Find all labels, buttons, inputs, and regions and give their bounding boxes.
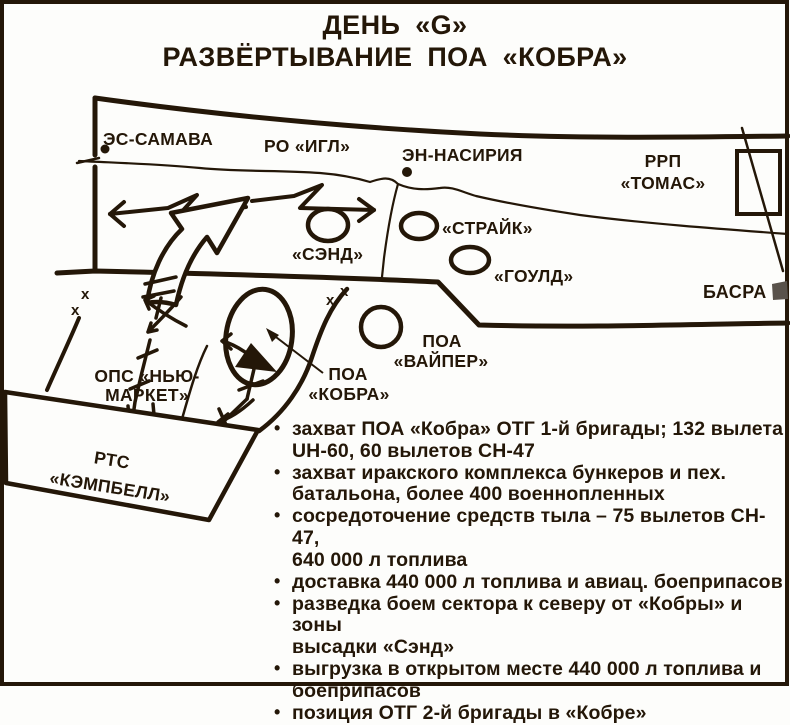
label-rrp-thomas-2: «ТОМАС»: [621, 173, 706, 193]
river-branch-line: [382, 184, 398, 277]
label-rrp-thomas-1: РРП: [645, 151, 682, 171]
label-ro-eagle: РО «ИГЛ»: [264, 136, 350, 156]
label-poa-cobra-2: «КОБРА»: [308, 384, 389, 404]
note-item: доставка 440 000 л топлива и авиац. боеп…: [265, 572, 785, 594]
label-poa-cobra-1: ПОА: [328, 364, 367, 384]
note-item: сосредоточение средств тыла – 75 вылетов…: [265, 506, 785, 571]
cobra-callout-arrowhead: [266, 328, 279, 342]
lz-gold-ellipse: [451, 247, 489, 273]
boundary-x-mark: x: [81, 286, 90, 303]
label-lz-strike: «СТРАЙК»: [442, 217, 533, 238]
note-item: позиция ОТГ 2-й бригады в «Кобре»: [265, 703, 785, 725]
poa-cobra-ellipse: [220, 285, 299, 389]
poa-viper-circle: [361, 307, 401, 347]
label-lz-gold: «ГОУЛД»: [494, 266, 573, 286]
label-ops-newmarket-1: ОПС «НЬЮ-: [94, 366, 199, 386]
basra-city-marker: [772, 281, 788, 300]
cobra-assault-arrowhead: [235, 343, 277, 372]
operation-notes-list: захват ПОА «Кобра» ОТГ 1-й бригады; 132 …: [265, 419, 785, 725]
lz-sand-ellipse: [308, 209, 348, 241]
note-item: захват ПОА «Кобра» ОТГ 1-й бригады; 132 …: [265, 419, 785, 462]
label-poa-viper-2: «ВАЙПЕР»: [394, 350, 489, 371]
label-basra: БАСРА: [703, 282, 767, 302]
label-es-samawa: ЭС-САМАВА: [103, 129, 213, 149]
note-item: разведка боем сектора к северу от «Кобры…: [265, 594, 785, 659]
label-ops-newmarket-2: МАРКЕТ»: [105, 385, 189, 405]
lz-strike-ellipse: [401, 213, 437, 239]
note-item: захват иракского комплекса бункеров и пе…: [265, 463, 785, 506]
en-nasiriya-city-dot: [402, 167, 412, 177]
boundary-x-mark: x: [340, 283, 349, 300]
boundary-x-mark: x: [71, 302, 80, 319]
note-item: выгрузка в открытом месте 440 000 л топл…: [265, 659, 785, 702]
southwest-boundary-line: [47, 318, 79, 390]
label-lz-sand: «СЭНД»: [292, 244, 363, 264]
boundary-x-mark: x: [326, 292, 335, 309]
screen-arrow-right-shaft: [252, 185, 374, 210]
label-poa-viper-1: ПОА: [422, 331, 461, 351]
cobra-sector-boundary-line: [259, 289, 347, 431]
main-attack-outline-arrow: [147, 198, 248, 305]
label-en-nasiriya: ЭН-НАСИРИЯ: [402, 145, 523, 165]
